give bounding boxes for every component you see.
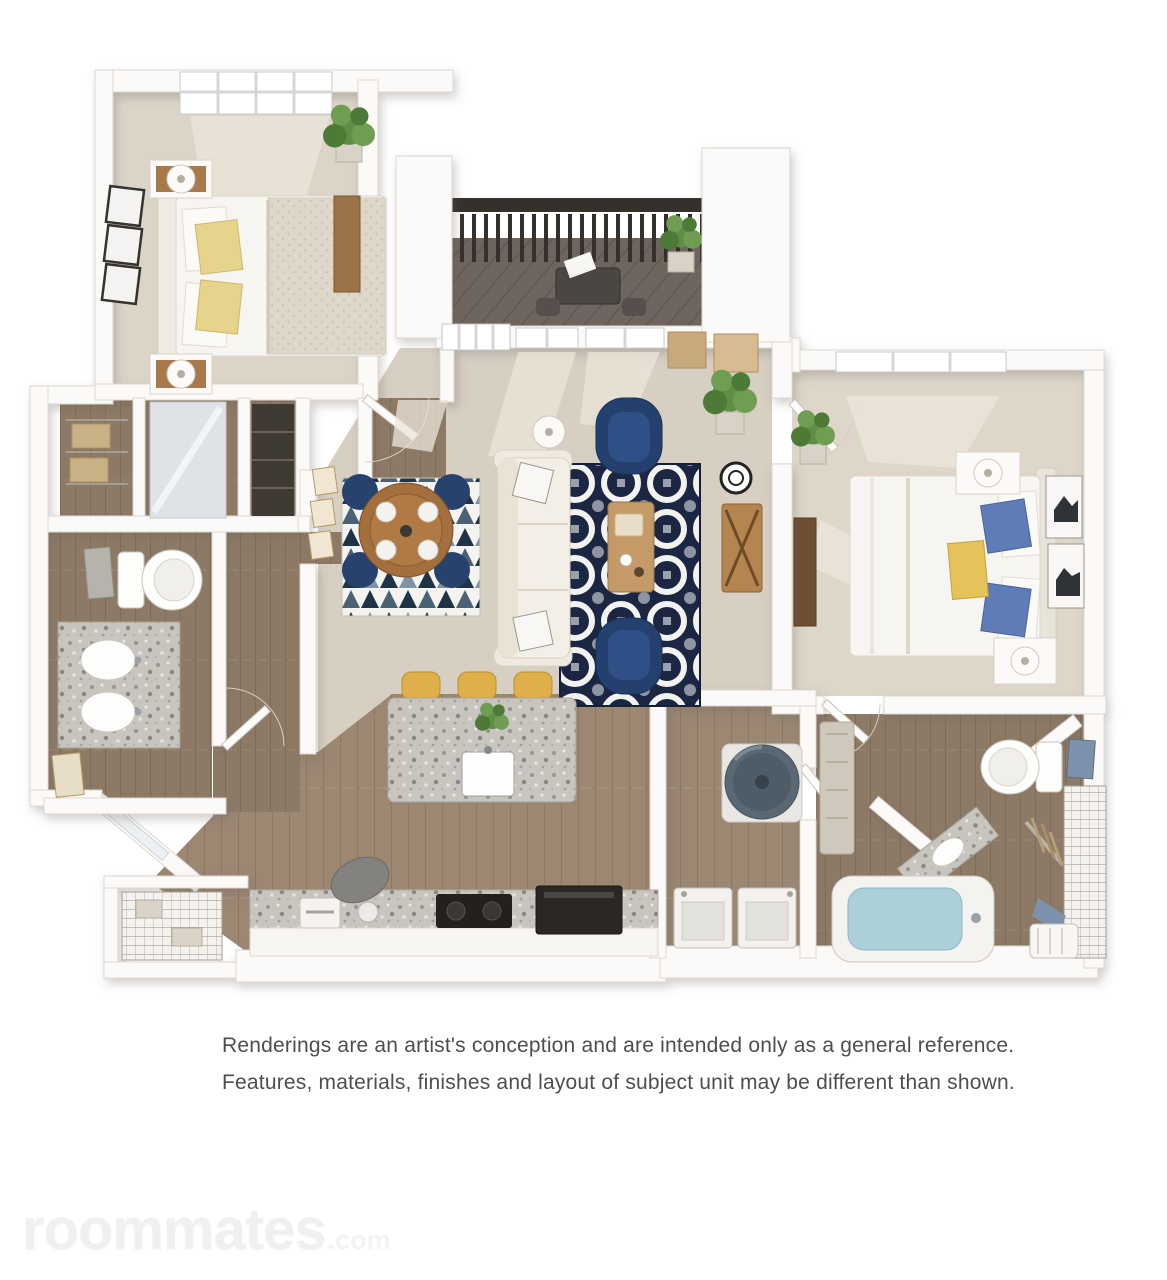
screenshot: Renderings are an artist's conception an… bbox=[0, 0, 1167, 1280]
yellow-pillow bbox=[195, 220, 243, 275]
watermark: roommates.com bbox=[22, 1196, 391, 1263]
island-sink bbox=[462, 752, 514, 796]
sofa bbox=[494, 450, 572, 666]
place-setting bbox=[376, 540, 396, 560]
framed-art bbox=[52, 753, 84, 798]
bedroom-2-window bbox=[836, 352, 1006, 372]
bar-stool bbox=[514, 672, 552, 700]
yellow-pillow bbox=[196, 280, 243, 334]
kitchen-counter bbox=[250, 886, 658, 956]
storage-box bbox=[70, 458, 108, 482]
disclaimer-line-1: Renderings are an artist's conception an… bbox=[222, 1027, 1015, 1064]
cooktop bbox=[436, 894, 512, 928]
wall-art bbox=[668, 332, 706, 368]
pantry bbox=[122, 892, 222, 960]
wall-art bbox=[714, 334, 758, 372]
bowl bbox=[358, 902, 378, 922]
blue-pillow bbox=[981, 499, 1032, 553]
side-table bbox=[721, 463, 751, 493]
double-vanity bbox=[58, 622, 180, 748]
balcony-chair bbox=[536, 298, 560, 316]
tub-faucet bbox=[971, 913, 981, 923]
yellow-pillow bbox=[948, 541, 989, 600]
balcony-chair bbox=[622, 298, 646, 316]
plant-pot bbox=[716, 412, 744, 434]
tray bbox=[615, 514, 643, 536]
kitchen-island bbox=[388, 698, 576, 802]
floor-lamp-icon bbox=[533, 416, 565, 448]
toilet bbox=[981, 740, 1062, 794]
throw-pillow bbox=[513, 611, 553, 651]
mirror bbox=[84, 547, 114, 599]
balcony-pillar bbox=[702, 148, 790, 342]
leaning-frames-icon bbox=[102, 186, 144, 304]
dining-area bbox=[342, 474, 480, 616]
living-windows bbox=[516, 328, 664, 348]
bar-stool bbox=[458, 672, 496, 700]
media-console bbox=[722, 504, 762, 592]
watermark-brand: roommates bbox=[22, 1197, 326, 1262]
wall-cabinet bbox=[1067, 739, 1096, 779]
bedroom-1-window bbox=[180, 72, 332, 114]
place-setting bbox=[418, 540, 438, 560]
balcony-railing bbox=[440, 198, 708, 212]
headboard bbox=[158, 196, 178, 356]
watermark-tld: .com bbox=[328, 1225, 391, 1255]
navy-armchair bbox=[596, 618, 662, 694]
bathtub bbox=[832, 876, 994, 962]
duvet bbox=[268, 198, 386, 354]
storage-box bbox=[72, 424, 110, 448]
entry-french-door bbox=[442, 324, 510, 350]
bar-stool bbox=[402, 672, 440, 700]
centerpiece bbox=[400, 525, 412, 537]
navy-armchair bbox=[596, 398, 662, 474]
plant-pot bbox=[668, 252, 694, 272]
water-heater bbox=[722, 744, 802, 822]
balcony-table bbox=[556, 268, 620, 304]
disclaimer-text: Renderings are an artist's conception an… bbox=[222, 1027, 1015, 1101]
throw-pillow bbox=[512, 462, 553, 503]
place-setting bbox=[376, 502, 396, 522]
balcony-pillar bbox=[396, 156, 452, 338]
plant-pot bbox=[800, 444, 826, 464]
disclaimer-line-2: Features, materials, finishes and layout… bbox=[222, 1064, 1015, 1101]
dresser bbox=[334, 196, 360, 292]
coffee-table bbox=[608, 502, 654, 592]
range-oven bbox=[536, 886, 622, 934]
toilet bbox=[118, 550, 202, 610]
dresser bbox=[794, 518, 816, 626]
place-setting bbox=[418, 502, 438, 522]
dryer bbox=[738, 888, 796, 948]
runner-rug bbox=[820, 722, 854, 854]
washer bbox=[674, 888, 732, 948]
